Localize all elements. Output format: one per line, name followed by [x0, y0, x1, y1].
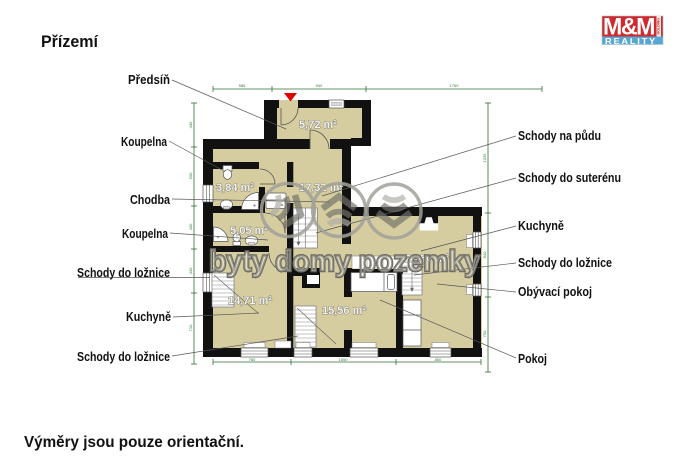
svg-text:byty domy pozemky: byty domy pozemky	[209, 245, 480, 278]
svg-text:710: 710	[188, 324, 193, 331]
svg-text:1050: 1050	[339, 357, 349, 362]
svg-text:Přízemí: Přízemí	[41, 32, 99, 51]
svg-text:780: 780	[249, 357, 256, 362]
svg-text:Pokoj: Pokoj	[518, 352, 547, 366]
svg-text:Schody do ložnice: Schody do ložnice	[518, 256, 612, 270]
svg-text:Koupelna: Koupelna	[121, 135, 168, 149]
svg-text:1035: 1035	[482, 153, 487, 163]
svg-text:15,56 m²: 15,56 m²	[322, 305, 366, 317]
svg-text:440: 440	[188, 267, 193, 274]
svg-text:REALITY: REALITY	[605, 36, 657, 46]
svg-text:3,84 m²: 3,84 m²	[216, 182, 254, 194]
svg-text:5,72 m²: 5,72 m²	[299, 119, 337, 131]
svg-text:Schody do suterénu: Schody do suterénu	[518, 171, 621, 185]
svg-text:Předsíň: Předsíň	[128, 73, 170, 87]
svg-text:430: 430	[188, 223, 193, 230]
svg-text:850: 850	[435, 357, 442, 362]
svg-text:750: 750	[482, 330, 487, 337]
svg-text:14,71 m²: 14,71 m²	[228, 295, 272, 307]
svg-text:Výměry jsou pouze orientační.: Výměry jsou pouze orientační.	[24, 434, 244, 451]
svg-text:1760: 1760	[450, 83, 460, 88]
svg-text:Chodba: Chodba	[130, 193, 171, 207]
svg-text:Schody do ložnice: Schody do ložnice	[77, 350, 170, 364]
svg-text:Kuchyně: Kuchyně	[126, 310, 171, 324]
svg-text:Schody do ložnice: Schody do ložnice	[77, 266, 170, 280]
svg-text:Obývací pokoj: Obývací pokoj	[518, 285, 592, 299]
svg-text:HOLDING: HOLDING	[657, 18, 661, 35]
svg-text:440: 440	[188, 121, 193, 128]
svg-text:590: 590	[188, 172, 193, 179]
svg-text:Koupelna: Koupelna	[122, 227, 169, 241]
svg-text:Schody na půdu: Schody na půdu	[518, 129, 601, 143]
svg-text:5,05 m²: 5,05 m²	[230, 225, 268, 237]
svg-text:940: 940	[316, 83, 323, 88]
svg-text:Kuchyně: Kuchyně	[518, 219, 564, 233]
svg-text:585: 585	[239, 83, 246, 88]
svg-text:840: 840	[482, 251, 487, 258]
